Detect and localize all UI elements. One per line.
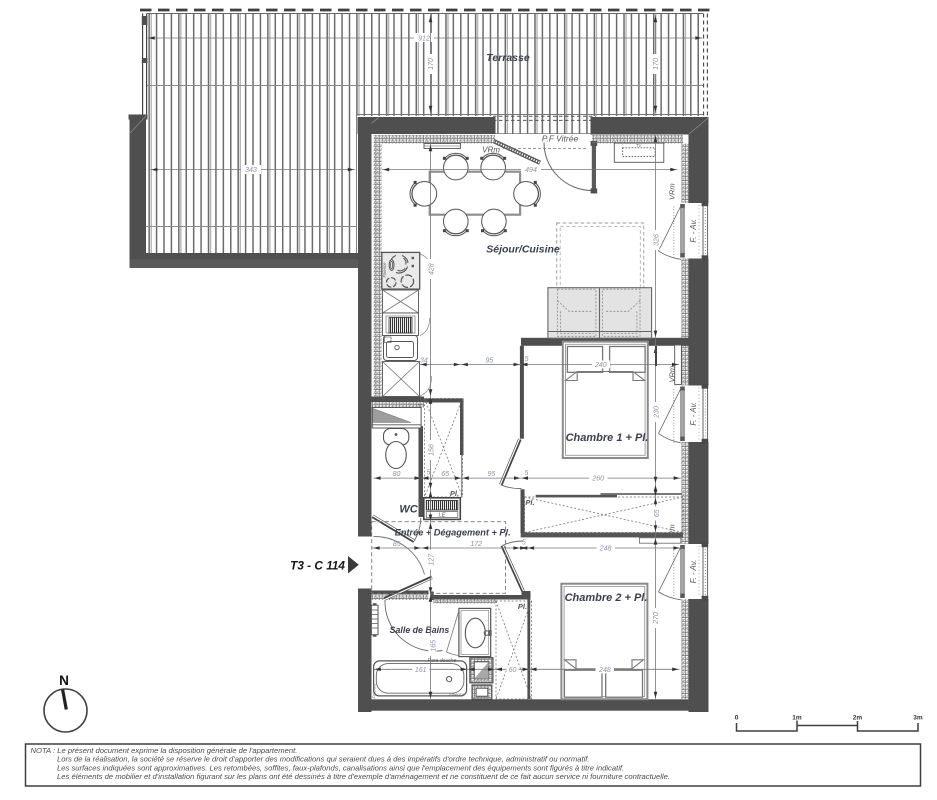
svg-text:Pl.: Pl. [525,498,534,507]
svg-text:WC: WC [399,504,418,516]
svg-text:270: 270 [653,612,660,625]
svg-text:95: 95 [486,358,494,365]
svg-text:Faience: Faience [449,692,465,697]
svg-text:127: 127 [429,553,436,566]
svg-text:85: 85 [393,541,401,548]
svg-text:Séjour/Cuisine: Séjour/Cuisine [486,244,560,256]
svg-text:Salle de Bains: Salle de Bains [390,625,450,635]
svg-text:Lors de la réalisation, la soc: Lors de la réalisation, la société se ré… [57,755,590,764]
svg-text:F. - Av.: F. - Av. [689,219,698,243]
svg-text:3m: 3m [913,715,923,722]
svg-text:Chambre 2 + Pl.: Chambre 2 + Pl. [565,592,648,604]
svg-text:I.E: I.E [438,513,446,519]
svg-text:2m: 2m [853,715,863,722]
svg-text:170: 170 [428,58,435,70]
svg-text:T3 - C 114: T3 - C 114 [290,558,345,572]
svg-text:5: 5 [524,470,528,477]
svg-text:N: N [59,673,69,688]
svg-text:NOTA : Le présent document exp: NOTA : Le présent document exprime la di… [31,746,298,755]
svg-text:Les éléments de mobilier et d': Les éléments de mobilier et d'installati… [57,772,670,781]
svg-text:60: 60 [509,667,517,674]
svg-text:34: 34 [420,358,428,365]
svg-text:5: 5 [522,540,526,547]
svg-text:F. - Av.: F. - Av. [689,402,698,426]
svg-text:Pare-douche: Pare-douche [428,658,457,664]
svg-text:343: 343 [245,167,257,174]
svg-text:Faience: Faience [382,262,387,278]
svg-text:326: 326 [653,234,660,246]
svg-text:230: 230 [653,406,660,419]
svg-text:Chambre 1 + Pl.: Chambre 1 + Pl. [566,432,649,444]
svg-text:912: 912 [418,36,430,43]
svg-text:P.F Vitrée: P.F Vitrée [542,134,579,144]
svg-text:0: 0 [735,715,739,722]
svg-text:260: 260 [591,476,604,483]
svg-text:5: 5 [426,470,430,477]
svg-text:165: 165 [430,640,437,652]
svg-text:170: 170 [653,58,660,70]
svg-text:248: 248 [599,546,612,553]
svg-text:VRm: VRm [668,183,677,200]
svg-text:428: 428 [428,263,435,275]
svg-text:Terrasse: Terrasse [486,52,530,64]
svg-text:65: 65 [441,471,449,478]
svg-text:494: 494 [525,167,537,174]
svg-text:Tv: Tv [636,143,642,148]
svg-text:156: 156 [428,444,435,456]
svg-text:80: 80 [393,471,401,478]
svg-text:95: 95 [488,471,496,478]
svg-text:172: 172 [470,541,482,548]
svg-text:240: 240 [594,362,607,369]
svg-text:65: 65 [654,509,661,517]
svg-text:Les surfaces indiquées sont ap: Les surfaces indiquées sont approximativ… [57,763,624,772]
svg-text:Faience: Faience [372,683,377,699]
svg-text:VRm: VRm [482,145,500,154]
svg-text:Entrée + Dégagement + Pl.: Entrée + Dégagement + Pl. [395,528,511,538]
svg-text:1m: 1m [792,715,802,722]
svg-text:Pl.: Pl. [450,489,459,498]
svg-text:248: 248 [598,667,611,674]
svg-text:Pl.: Pl. [518,602,527,611]
svg-text:5: 5 [525,356,529,363]
svg-text:F. - Av.: F. - Av. [689,560,698,584]
svg-text:161: 161 [415,667,427,674]
